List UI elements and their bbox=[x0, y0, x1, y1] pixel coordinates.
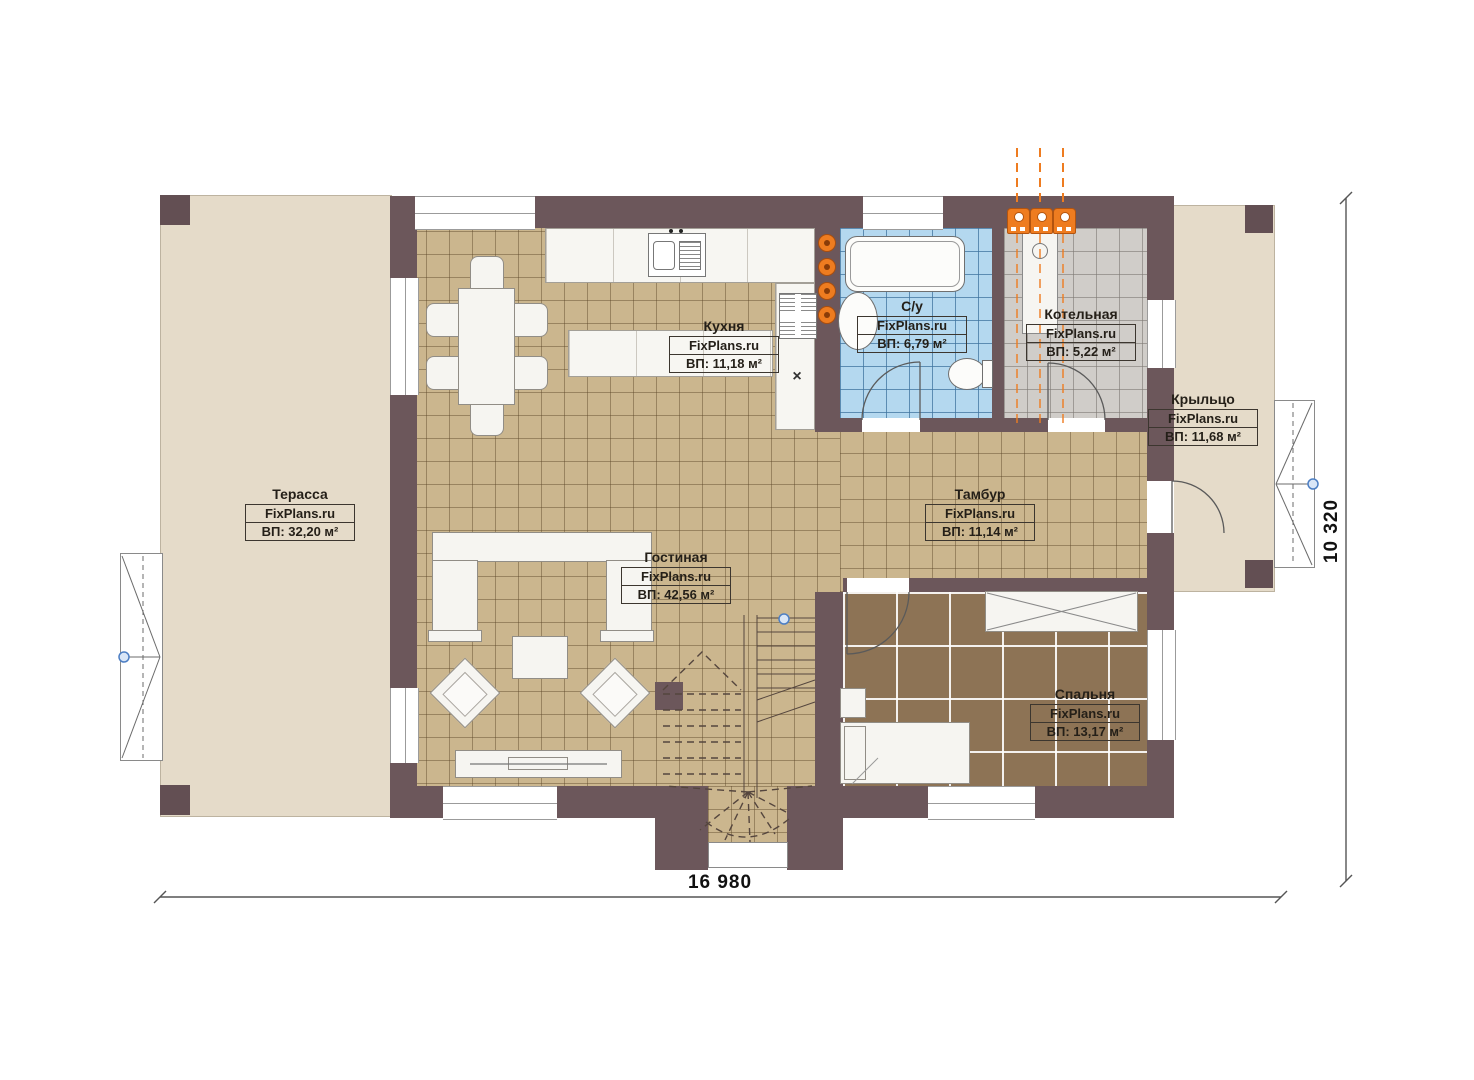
room-label-living: Гостиная FixPlans.ru ВП: 42,56 м² bbox=[621, 549, 731, 604]
brand-watermark: FixPlans.ru bbox=[622, 568, 730, 586]
room-info-box: FixPlans.ru ВП: 32,20 м² bbox=[245, 504, 355, 541]
room-info-box: FixPlans.ru ВП: 6,79 м² bbox=[857, 316, 967, 353]
heating-unit-icon bbox=[1053, 208, 1076, 234]
brand-watermark: FixPlans.ru bbox=[670, 337, 778, 355]
heating-unit-dial bbox=[1014, 212, 1024, 222]
heating-unit-icon bbox=[1007, 208, 1030, 234]
brand-watermark: FixPlans.ru bbox=[858, 317, 966, 335]
room-name: Котельная bbox=[1026, 306, 1136, 322]
room-label-boiler: Котельная FixPlans.ru ВП: 5,22 м² bbox=[1026, 306, 1136, 361]
room-area: ВП: 13,17 м² bbox=[1031, 723, 1139, 740]
room-label-bedroom: Спальня FixPlans.ru ВП: 13,17 м² bbox=[1030, 686, 1140, 741]
room-info-box: FixPlans.ru ВП: 5,22 м² bbox=[1026, 324, 1136, 361]
room-area: ВП: 11,68 м² bbox=[1149, 428, 1257, 445]
porch-post-bottom bbox=[1245, 560, 1273, 588]
brand-watermark: FixPlans.ru bbox=[1149, 410, 1257, 428]
brand-watermark: FixPlans.ru bbox=[926, 505, 1034, 523]
sofa-left-foot bbox=[428, 630, 482, 642]
window-bathroom-top bbox=[863, 196, 943, 230]
entry-stoop bbox=[708, 842, 788, 868]
bathtub-inner bbox=[850, 241, 960, 287]
door-gap-vestibule-porch bbox=[1147, 481, 1174, 533]
room-name: С/у bbox=[857, 298, 967, 314]
bedside-table bbox=[840, 688, 866, 718]
dining-chair bbox=[510, 303, 548, 337]
room-area: ВП: 11,18 м² bbox=[670, 355, 778, 372]
stair-column bbox=[655, 682, 683, 710]
room-label-terrace: Терасса FixPlans.ru ВП: 32,20 м² bbox=[245, 486, 355, 541]
room-area: ВП: 11,14 м² bbox=[926, 523, 1034, 540]
room-name: Гостиная bbox=[621, 549, 731, 565]
wall-bath-boiler bbox=[992, 228, 1004, 432]
dimension-height-label: 10 320 bbox=[1321, 491, 1343, 571]
room-info-box: FixPlans.ru ВП: 11,18 м² bbox=[669, 336, 779, 373]
door-gap-bedroom bbox=[847, 578, 909, 592]
room-name: Кухня bbox=[669, 318, 779, 334]
dining-chair bbox=[510, 356, 548, 390]
window-bedroom-bottom bbox=[928, 786, 1035, 820]
armchair-cushion bbox=[442, 672, 487, 717]
tv bbox=[508, 757, 568, 770]
window-living-left bbox=[390, 688, 419, 763]
sink-basin bbox=[653, 241, 675, 270]
entry-porch-wall-right bbox=[787, 786, 843, 870]
heating-unit-icon bbox=[1030, 208, 1053, 234]
brand-watermark: FixPlans.ru bbox=[1031, 705, 1139, 723]
window-bedroom-right bbox=[1147, 630, 1176, 740]
room-name: Тамбур bbox=[925, 486, 1035, 502]
window-boiler-right bbox=[1147, 300, 1176, 368]
armchair-cushion bbox=[592, 672, 637, 717]
brand-watermark: FixPlans.ru bbox=[246, 505, 354, 523]
room-info-box: FixPlans.ru ВП: 11,68 м² bbox=[1148, 409, 1258, 446]
room-label-vestibule: Тамбур FixPlans.ru ВП: 11,14 м² bbox=[925, 486, 1035, 541]
stove-hob-icon bbox=[779, 293, 817, 339]
sofa-right-foot bbox=[600, 630, 654, 642]
room-label-bathroom: С/у FixPlans.ru ВП: 6,79 м² bbox=[857, 298, 967, 353]
terrace-steps bbox=[120, 553, 163, 761]
bed-pillow bbox=[844, 726, 866, 780]
sofa-left-arm bbox=[432, 560, 478, 632]
door-gap-bathroom bbox=[862, 418, 920, 432]
toilet-icon bbox=[948, 358, 986, 390]
room-info-box: FixPlans.ru ВП: 13,17 м² bbox=[1030, 704, 1140, 741]
room-name: Крыльцо bbox=[1148, 391, 1258, 407]
sofa-back bbox=[432, 532, 652, 562]
dimension-width-label: 16 980 bbox=[655, 872, 785, 894]
stove-extra-mark: × bbox=[782, 368, 812, 386]
door-gap-boiler bbox=[1048, 418, 1105, 432]
room-area: ВП: 32,20 м² bbox=[246, 523, 354, 540]
window-dining-left bbox=[390, 278, 419, 395]
room-area: ВП: 6,79 м² bbox=[858, 335, 966, 352]
boiler-dial bbox=[1032, 243, 1048, 259]
dining-table bbox=[458, 288, 515, 405]
room-area: ВП: 5,22 м² bbox=[1027, 343, 1135, 360]
room-name: Терасса bbox=[245, 486, 355, 502]
room-info-box: FixPlans.ru ВП: 11,14 м² bbox=[925, 504, 1035, 541]
room-label-kitchen: Кухня FixPlans.ru ВП: 11,18 м² bbox=[669, 318, 779, 373]
window-kitchen-top bbox=[415, 196, 535, 230]
terrace-post-bottom bbox=[160, 785, 190, 815]
wall-stairs-bedroom bbox=[815, 592, 843, 786]
room-info-box: FixPlans.ru ВП: 42,56 м² bbox=[621, 567, 731, 604]
heating-unit-dial bbox=[1037, 212, 1047, 222]
sink-drainer bbox=[679, 241, 701, 270]
kitchen-sink-icon bbox=[648, 233, 706, 277]
stairwell-exit-floor bbox=[708, 786, 787, 842]
toilet-tank bbox=[982, 360, 993, 388]
floor-plan: × Терасса FixPlans.ru ВП: 32,20 м² Ку bbox=[0, 0, 1474, 1080]
wardrobe bbox=[985, 591, 1138, 632]
terrace-post-top bbox=[160, 195, 190, 225]
room-label-porch: Крыльцо FixPlans.ru ВП: 11,68 м² bbox=[1148, 391, 1258, 446]
wall-kitchen-bath bbox=[815, 228, 840, 432]
room-area: ВП: 42,56 м² bbox=[622, 586, 730, 603]
window-living-bottom bbox=[443, 786, 557, 820]
entry-porch-wall-left bbox=[655, 786, 708, 870]
room-name: Спальня bbox=[1030, 686, 1140, 702]
porch-steps bbox=[1274, 400, 1315, 568]
porch-post-top bbox=[1245, 205, 1273, 233]
brand-watermark: FixPlans.ru bbox=[1027, 325, 1135, 343]
coffee-table bbox=[512, 636, 568, 679]
heating-unit-dial bbox=[1060, 212, 1070, 222]
bathtub-icon bbox=[845, 236, 965, 292]
